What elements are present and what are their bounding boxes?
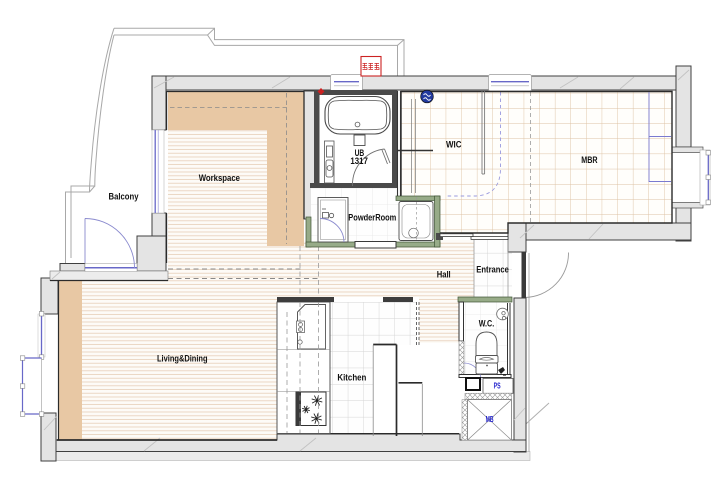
svg-text:WIC: WIC (446, 140, 462, 150)
svg-text:Hall: Hall (437, 269, 451, 279)
svg-text:Workspace: Workspace (199, 173, 240, 183)
svg-text:PS: PS (494, 382, 501, 391)
svg-text:PowderRoom: PowderRoom (348, 213, 396, 223)
svg-text:1317: 1317 (350, 156, 368, 166)
svg-text:Living&Dining: Living&Dining (157, 353, 208, 363)
svg-text:MBR: MBR (581, 155, 598, 165)
svg-text:W.C.: W.C. (479, 318, 495, 328)
svg-text:MB: MB (486, 415, 494, 424)
svg-text:Balcony: Balcony (109, 192, 140, 202)
svg-text:Kitchen: Kitchen (337, 372, 366, 382)
svg-text:Entrance: Entrance (476, 265, 509, 275)
